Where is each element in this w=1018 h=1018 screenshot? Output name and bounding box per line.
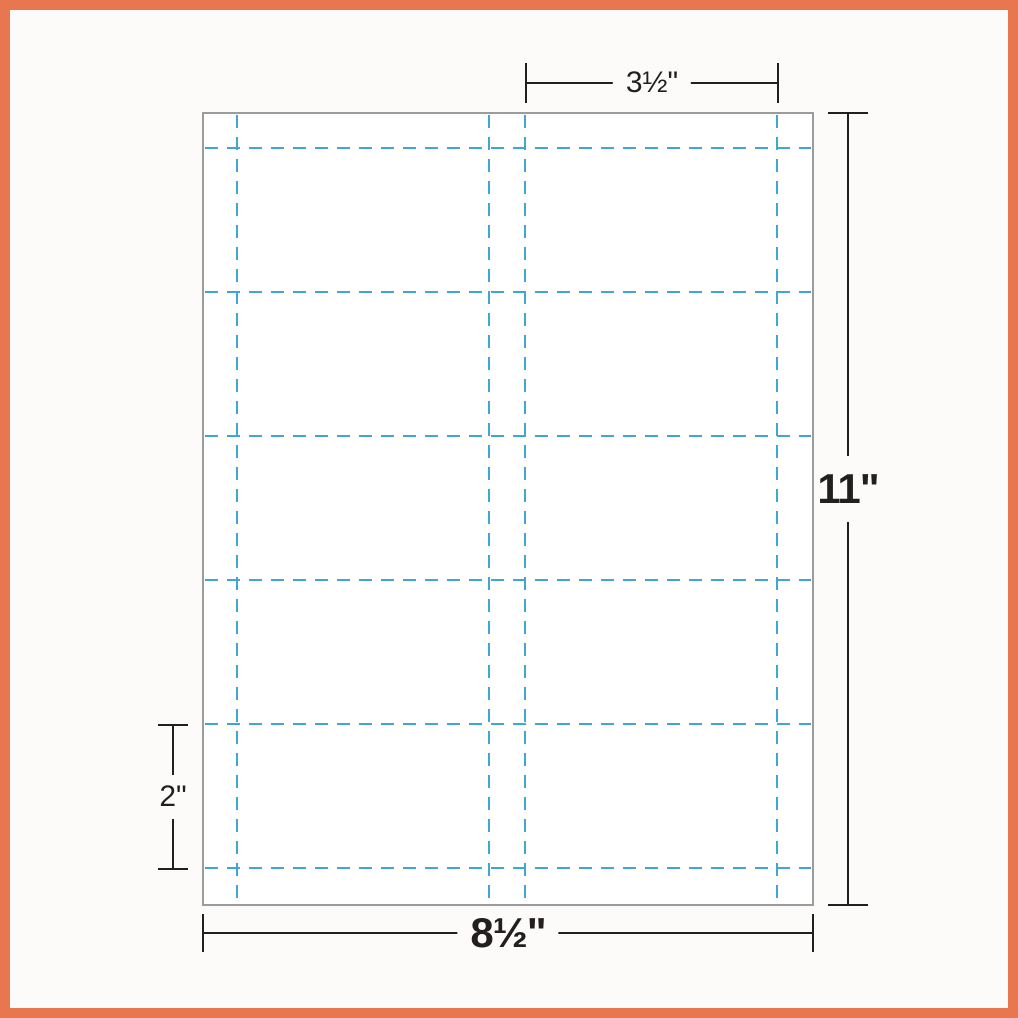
cut-line-horizontal-2	[205, 291, 811, 293]
dimension-tick-top	[158, 724, 188, 726]
sheet-height-label: 11"	[817, 456, 878, 522]
cut-line-vertical-1	[236, 115, 238, 903]
dimension-sheet-height: 11"	[828, 112, 868, 906]
cut-line-vertical-2	[488, 115, 490, 903]
dimension-tick-left	[202, 914, 204, 952]
dimension-tick-right	[812, 914, 814, 952]
orange-frame: 3½" 11" 2" 8½"	[0, 0, 1018, 1018]
dimension-tick-top	[828, 112, 868, 114]
template-diagram: 3½" 11" 2" 8½"	[0, 0, 1018, 1018]
cut-line-horizontal-5	[205, 723, 811, 725]
dimension-tick-bottom	[158, 868, 188, 870]
card-width-label: 3½"	[613, 68, 691, 98]
dimension-sheet-width: 8½"	[202, 914, 814, 952]
dimension-tick-left	[525, 63, 527, 103]
cut-line-horizontal-1	[205, 147, 811, 149]
dimension-card-height: 2"	[158, 724, 188, 870]
dimension-tick-bottom	[828, 904, 868, 906]
cut-line-vertical-4	[776, 115, 778, 903]
cut-line-horizontal-4	[205, 579, 811, 581]
card-height-label: 2"	[159, 775, 186, 819]
cut-line-horizontal-6	[205, 867, 811, 869]
dimension-tick-right	[777, 63, 779, 103]
dimension-card-width: 3½"	[525, 63, 779, 103]
cut-line-vertical-3	[524, 115, 526, 903]
paper-sheet	[202, 112, 814, 906]
sheet-width-label: 8½"	[457, 912, 558, 954]
cut-line-horizontal-3	[205, 435, 811, 437]
